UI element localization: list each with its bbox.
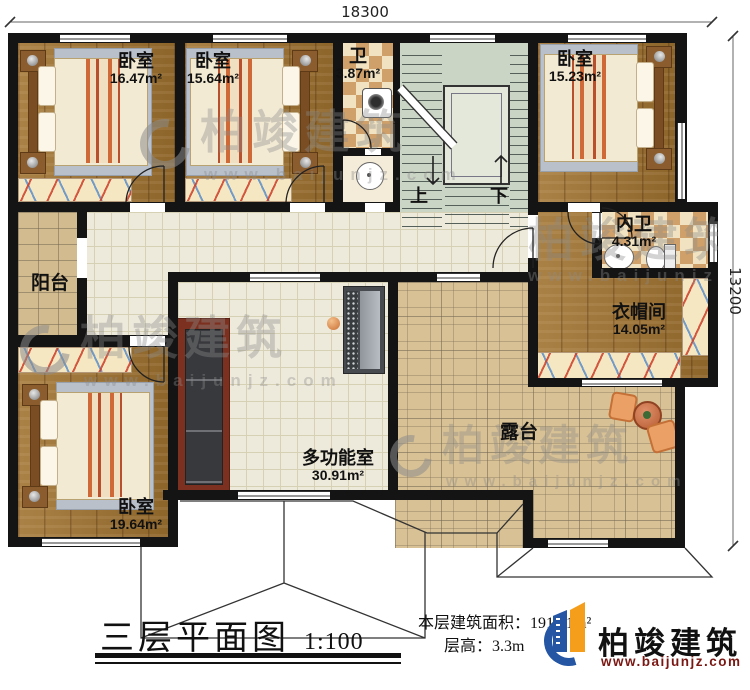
watermark-logo-icon — [382, 427, 440, 485]
dimension-top: 18300 — [330, 3, 400, 21]
title-underline-thick — [95, 653, 401, 658]
room-label-multi-function: 多功能室 30.91m² — [293, 449, 383, 484]
brand-logo-icon — [544, 598, 592, 668]
wall — [528, 282, 538, 387]
floor-plan-canvas: 柏竣建筑 www.baijunjz.com 柏竣建筑 www.baijunjz.… — [0, 0, 750, 690]
room-name: 卧室 — [183, 52, 243, 71]
room-area: 16.47m² — [100, 71, 172, 86]
window — [568, 34, 646, 42]
room-name: 卫 — [328, 47, 388, 66]
watermark-logo-icon — [10, 315, 80, 385]
door-opening — [365, 203, 385, 212]
nightstand — [20, 152, 46, 174]
floor-area-label: 本层建筑面积： — [418, 615, 530, 632]
window — [42, 538, 140, 546]
wall — [8, 202, 400, 212]
room-label-inner-bath: 内卫 4.31m² — [600, 215, 668, 250]
window — [548, 539, 608, 547]
floor-height-label: 层高： — [444, 638, 492, 655]
floor-height-value: 3.3m — [492, 638, 524, 655]
room-name: 阳台 — [22, 274, 78, 295]
wall — [163, 490, 533, 500]
bed-pillow — [636, 62, 654, 102]
room-area: 4.31m² — [600, 234, 668, 249]
room-name: 内卫 — [600, 215, 668, 234]
brand-logo: 柏竣建筑 www.baijunjz.com — [544, 596, 744, 676]
door-opening — [77, 238, 87, 278]
watermark-text: 柏竣建筑 — [200, 106, 408, 158]
watermark-url: www.baijunjz.com — [446, 473, 687, 490]
watermark-logo-icon — [130, 109, 200, 179]
watermark: 柏竣建筑 www.baijunjz.com — [140, 96, 463, 185]
logo-building-orange-icon — [570, 602, 585, 652]
nightstand — [646, 148, 672, 170]
stairs-down-label: 下 — [490, 182, 508, 208]
room-area: 19.64m² — [103, 517, 169, 532]
brand-url: www.baijunjz.com — [601, 654, 742, 669]
watermark-text: 柏竣建筑 — [80, 312, 288, 364]
drawing-title: 三层平面图 — [100, 620, 290, 657]
window — [213, 34, 287, 42]
stair-treads-right — [510, 55, 528, 228]
room-name: 衣帽间 — [600, 303, 678, 322]
watermark-url: www.baijunjz.com — [84, 371, 343, 391]
bed-blanket — [88, 393, 122, 497]
room-area: 3.87m² — [328, 66, 388, 81]
door-opening — [290, 203, 325, 212]
window — [430, 34, 495, 42]
tv-speaker — [346, 291, 358, 369]
room-name: 卧室 — [100, 52, 172, 71]
bed-pillow — [40, 400, 58, 440]
room-area: 15.23m² — [536, 69, 614, 84]
room-label-bath: 卫 3.87m² — [328, 47, 388, 82]
wall — [8, 33, 18, 547]
tv-unit — [343, 286, 385, 374]
room-label-bedroom-top-right: 卧室 15.23m² — [536, 50, 614, 85]
door-opening — [130, 203, 165, 212]
window — [238, 491, 330, 499]
closet-cloakroom-right — [682, 278, 710, 356]
room-label-bedroom-bottom-left: 卧室 19.64m² — [103, 498, 169, 533]
bed-bottom-left — [20, 382, 152, 508]
room-label-cloakroom: 衣帽间 14.05m² — [600, 303, 678, 338]
room-label-terrace: 露台 — [490, 423, 548, 444]
drawing-scale: 1:100 — [304, 629, 364, 655]
logo-building-blue-icon — [553, 610, 567, 652]
room-area: 15.64m² — [183, 71, 243, 86]
tv-screen — [360, 291, 380, 369]
window — [582, 379, 662, 386]
room-label-bedroom-top-left: 卧室 16.47m² — [100, 52, 172, 87]
room-area: 30.91m² — [293, 468, 383, 483]
window — [437, 273, 480, 281]
bed-pillow — [38, 66, 56, 106]
room-name: 卧室 — [536, 50, 614, 69]
room-name: 露台 — [490, 423, 548, 444]
window — [60, 34, 130, 42]
window — [677, 123, 685, 199]
room-label-bedroom-top-mid: 卧室 15.64m² — [183, 52, 243, 87]
room-name: 卧室 — [103, 498, 169, 517]
closet-bedroom-top-left — [18, 178, 132, 202]
room-label-balcony: 阳台 — [22, 274, 78, 295]
room-area: 14.05m² — [600, 322, 678, 337]
window — [250, 273, 320, 281]
bed-pillow — [38, 112, 56, 152]
room-name: 多功能室 — [293, 449, 383, 468]
logo-swoosh-icon — [535, 607, 603, 675]
wall — [168, 272, 538, 282]
bed-pillow — [40, 446, 58, 486]
drawing-title-block: 三层平面图1:100 — [100, 610, 364, 659]
stairs-up-label: 上 — [410, 182, 428, 208]
watermark: 柏竣建筑 www.baijunjz.com — [20, 302, 343, 391]
bed-pillow — [636, 108, 654, 148]
dimension-right: 13200 — [726, 256, 744, 326]
nightstand — [22, 486, 48, 508]
title-underline-thin — [95, 662, 401, 664]
watermark-url: www.baijunjz.com — [528, 266, 718, 286]
closet-cloakroom-bottom — [537, 352, 681, 380]
